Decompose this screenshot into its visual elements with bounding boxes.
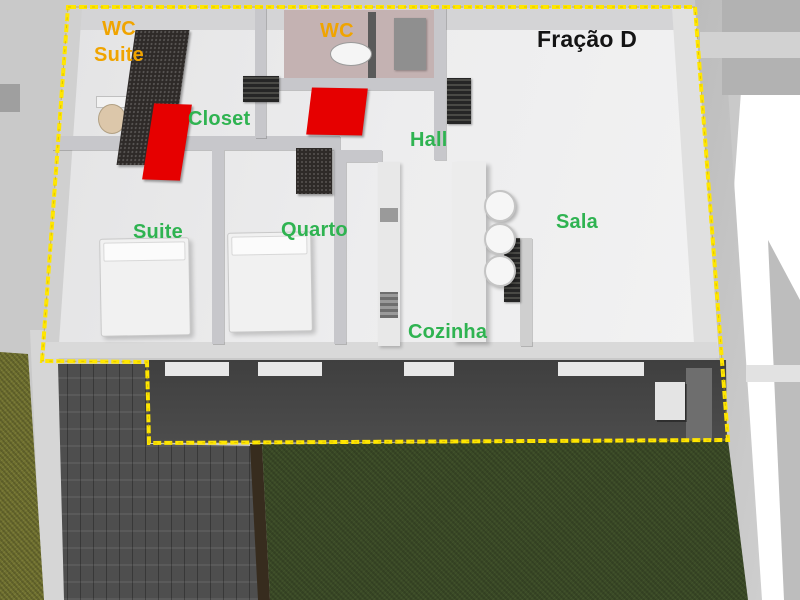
bed-pillow (103, 241, 185, 261)
room-label-line: WC (86, 16, 152, 42)
neighbor-ledge (700, 32, 800, 58)
wc-divider-wall (368, 12, 376, 78)
room-label-suite: Suite (133, 221, 183, 244)
interior-wall (334, 150, 346, 344)
terrace-column (686, 368, 712, 440)
interior-wall (212, 150, 224, 344)
room-label-hall: Hall (410, 129, 447, 152)
kitchen-tall-cabinet (447, 78, 471, 124)
room-label-quarto: Quarto (281, 219, 348, 242)
window-sill (404, 362, 454, 376)
window-sill (558, 362, 644, 376)
bar-stool (484, 190, 516, 222)
hall-cabinet (243, 76, 279, 102)
room-label-wc: WC (320, 20, 354, 43)
neighbor-ledge (746, 365, 800, 382)
kitchen-hob (380, 208, 398, 222)
window-sill (165, 362, 229, 376)
bar-stool (484, 223, 516, 255)
room-label-line: Suite (86, 42, 152, 68)
wc-cabinet (394, 18, 426, 70)
quarto-headboard (296, 148, 332, 194)
highlight-hall-door (306, 88, 368, 136)
lawn (258, 436, 752, 600)
window-sill (258, 362, 322, 376)
kitchen-oven (380, 292, 398, 318)
bar-stool (484, 255, 516, 287)
room-label-sala: Sala (556, 211, 598, 234)
unit-label: Fração D (537, 26, 637, 53)
kitchen-counter (378, 162, 400, 346)
floorplan-render: WC Suite WC Fração D Closet Hall Suite Q… (0, 0, 800, 600)
room-label-closet: Closet (188, 108, 250, 131)
wc-sink (330, 42, 372, 66)
room-label-wc-suite: WC Suite (86, 16, 152, 68)
interior-wall (255, 8, 266, 138)
neighbor-detail (0, 84, 20, 112)
interior-wall (346, 150, 382, 162)
kitchen-island (452, 162, 486, 342)
suite-bed (99, 237, 191, 337)
terrace (148, 360, 728, 443)
quarto-bed (227, 231, 313, 332)
room-label-cozinha: Cozinha (408, 321, 487, 344)
terrace-door (655, 382, 685, 420)
interior-wall (520, 238, 532, 346)
